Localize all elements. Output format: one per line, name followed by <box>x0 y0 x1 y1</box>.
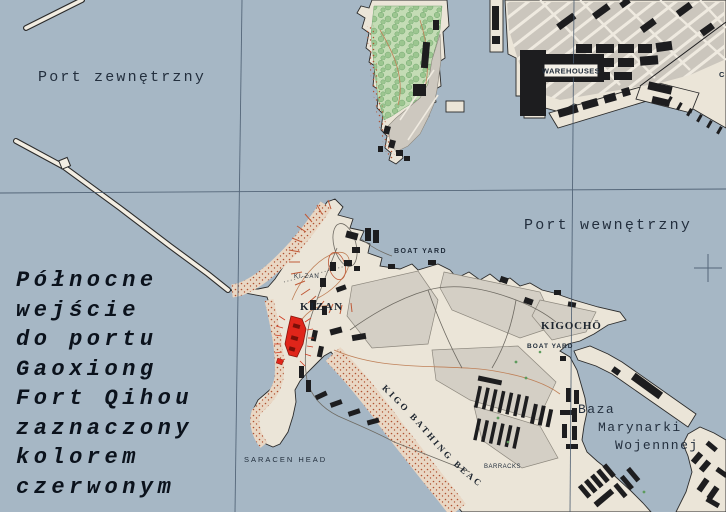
label-boat-yard-north: BOAT YARD <box>394 248 447 255</box>
annotation-line: kolorem <box>16 443 246 473</box>
label-kigocho: KIGOCHŌ <box>541 320 602 332</box>
label-inner-port: Port wewnętrzny <box>524 217 692 234</box>
label-warehouses: WAREHOUSES <box>542 67 600 76</box>
annotation-line: do portu <box>16 325 246 355</box>
label-boat-yard-kigocho: BOAT YARD <box>527 343 573 350</box>
label-barracks: BARRACKS <box>484 464 521 470</box>
label-naval-base-1: Baza <box>578 402 615 417</box>
annotation-line: wejście <box>16 296 246 326</box>
label-outer-port: Port zewnętrzny <box>38 69 206 86</box>
annotation-line: Gaoxiong <box>16 355 246 385</box>
annotation-note: Północne wejście do portu Gaoxiong Fort … <box>16 266 246 502</box>
harbor-map: Port zewnętrzny Port wewnętrzny WAREHOUS… <box>0 0 726 512</box>
label-kizan: KIZAN <box>300 301 344 313</box>
annotation-line: zaznaczony <box>16 414 246 444</box>
label-naval-base-3: Wojennnej <box>615 438 699 453</box>
label-edge-partial: C <box>719 70 725 79</box>
label-saracen-head: SARACEN HEAD <box>244 455 327 464</box>
annotation-line: czerwonym <box>16 473 246 503</box>
label-naval-base-2: Marynarki <box>598 420 682 435</box>
label-kizan-small: KI-ZAN <box>294 274 320 280</box>
annotation-line: Fort Qihou <box>16 384 246 414</box>
pier-t-dock <box>446 101 464 112</box>
annotation-line: Północne <box>16 266 246 296</box>
